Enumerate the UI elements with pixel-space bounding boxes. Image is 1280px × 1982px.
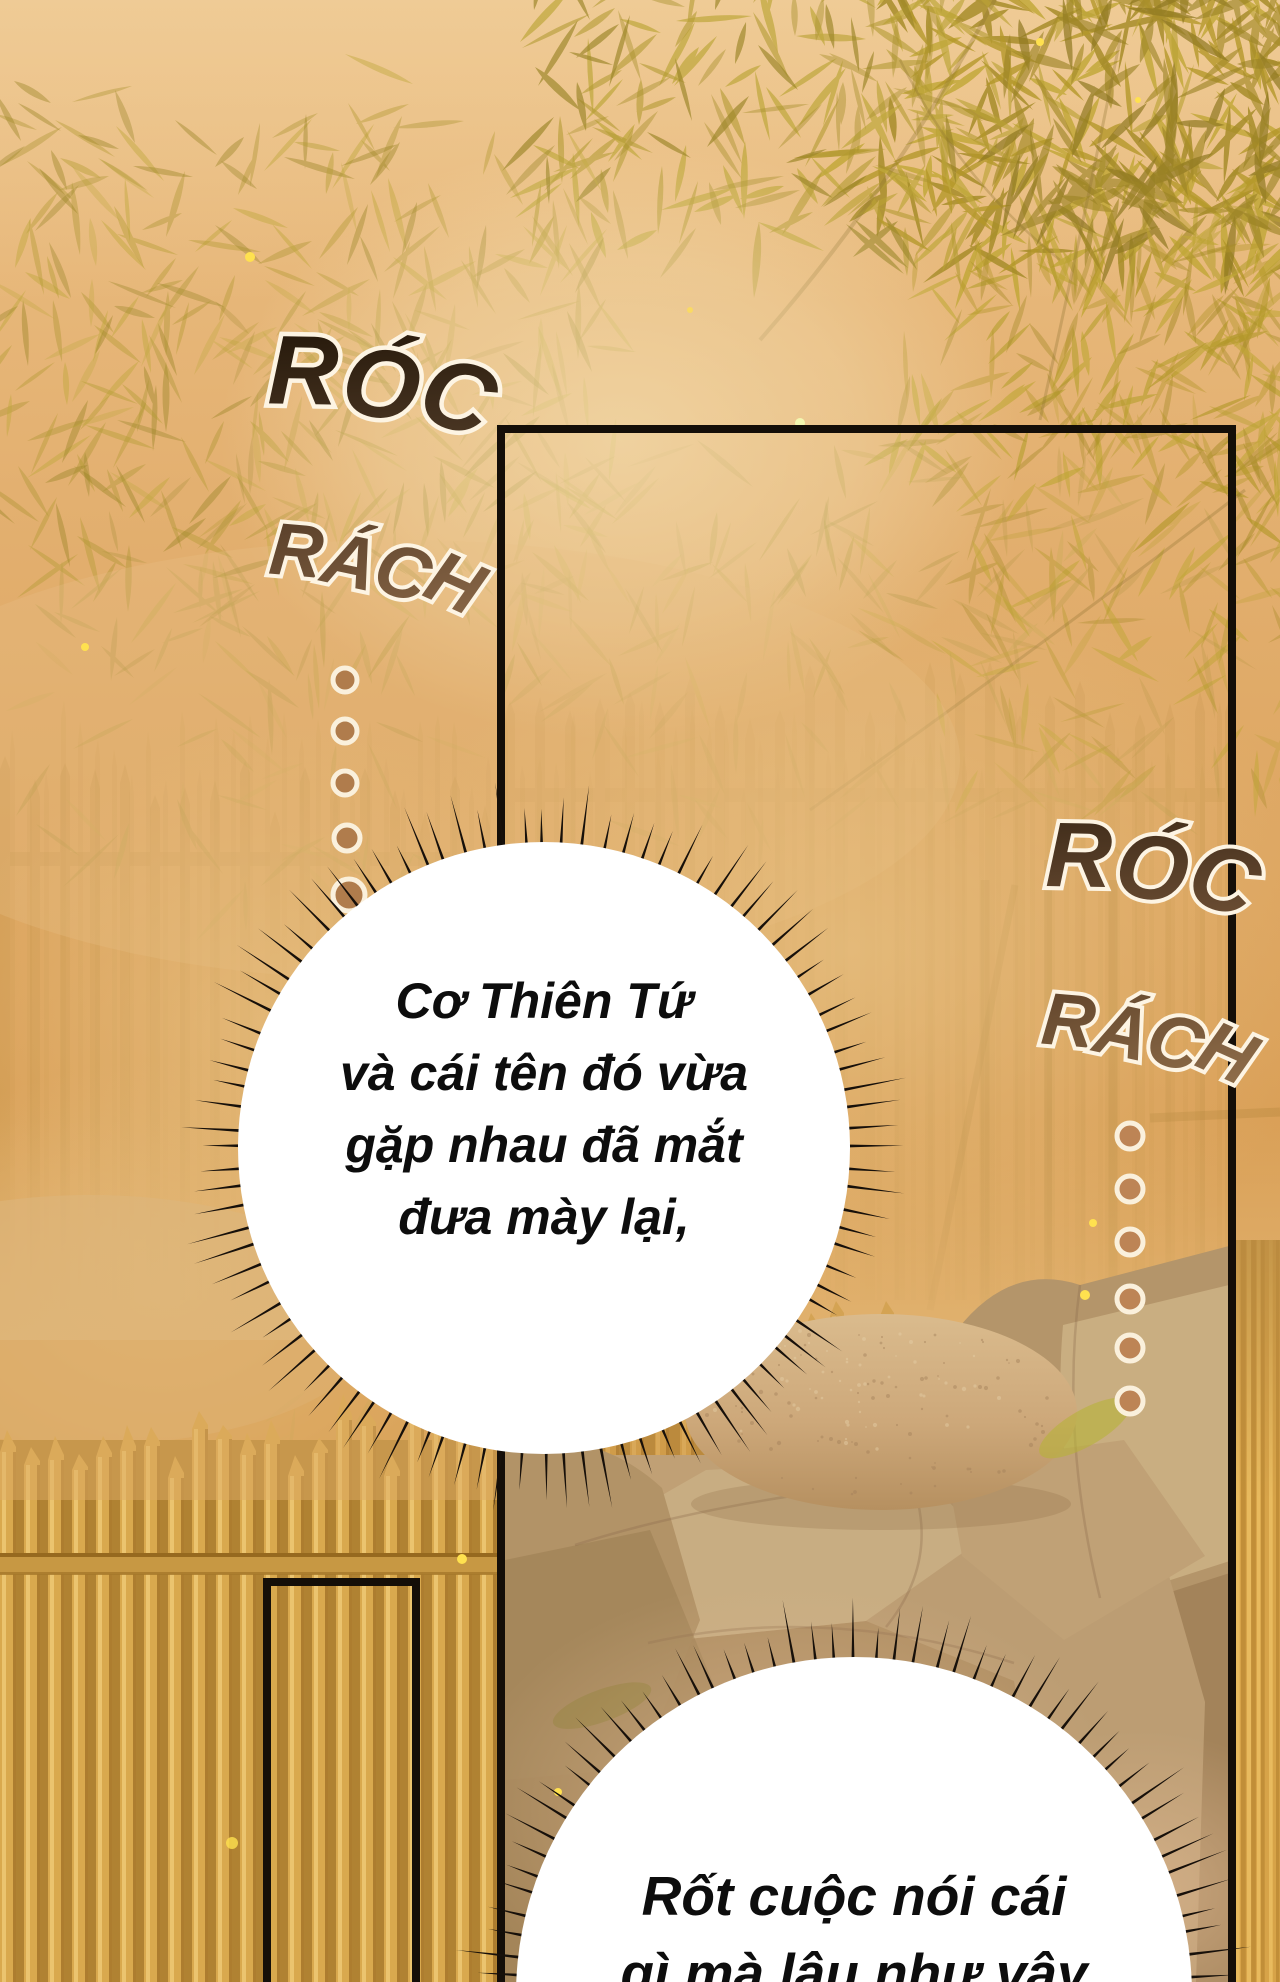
svg-text:đưa mày lại,: đưa mày lại, [398,1189,689,1245]
svg-text:và cái tên đó vừa: và cái tên đó vừa [340,1045,748,1101]
svg-text:gì mà lâu như vậy: gì mà lâu như vậy [619,1942,1090,1982]
svg-text:Cơ Thiên Tứ: Cơ Thiên Tứ [395,973,696,1029]
svg-text:gặp nhau đã mắt: gặp nhau đã mắt [344,1117,745,1173]
svg-text:Rốt cuộc nói cái: Rốt cuộc nói cái [642,1865,1068,1927]
